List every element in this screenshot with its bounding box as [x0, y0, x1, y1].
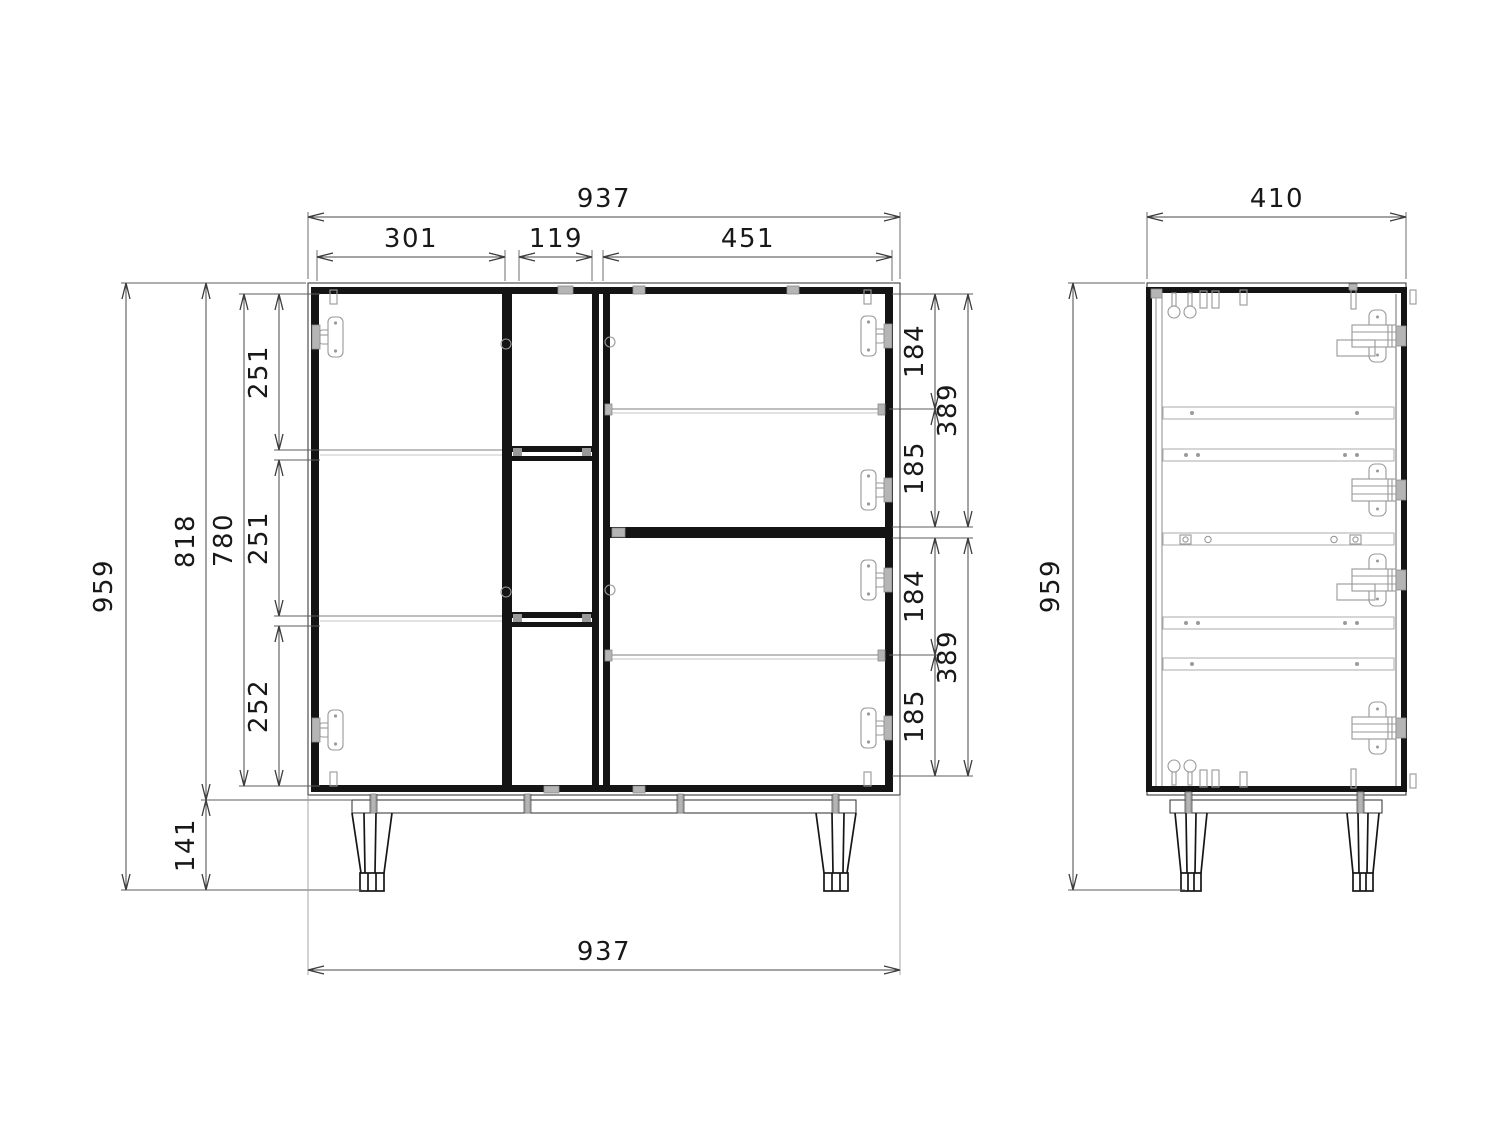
- side-rail-5: [1163, 658, 1394, 670]
- front-plinth: [352, 800, 856, 813]
- side-view: 410 959: [1036, 184, 1416, 891]
- front-right-leg: [816, 813, 856, 891]
- dim-side-total-height: 959: [1036, 559, 1066, 613]
- side-right-leg: [1347, 813, 1379, 891]
- front-niche-shelf-2: [512, 612, 592, 618]
- front-right-panel-edge: [885, 291, 893, 788]
- dim-front-right-width: 451: [721, 224, 775, 254]
- dim-front-bottom-width: 937: [577, 937, 631, 967]
- dim-right-upper-below-shelf: 185: [900, 441, 930, 495]
- dim-front-middle-width: 119: [529, 224, 583, 254]
- dim-right-lower-below-shelf: 185: [900, 689, 930, 743]
- front-dimensions: 937 301 119 451: [89, 184, 973, 975]
- side-front-edge: [1401, 287, 1407, 792]
- front-right-door-stile: [603, 294, 610, 785]
- dim-right-lower-above-shelf: 184: [900, 569, 930, 623]
- dim-right-upper-above-shelf: 184: [900, 324, 930, 378]
- front-niche-shelf-1: [512, 446, 592, 452]
- front-bottom-panel-edge: [311, 785, 893, 792]
- dim-front-top-width: 937: [577, 184, 631, 214]
- front-divider-a-edge: [502, 294, 512, 785]
- front-view: 937 301 119 451: [89, 184, 973, 975]
- side-shelf-rails: [1163, 407, 1394, 670]
- front-divider-b-edge: [592, 294, 599, 785]
- dim-front-left-compartment-3: 252: [244, 679, 274, 733]
- side-hinge-3: [1352, 554, 1406, 606]
- plinth-bolts: [370, 794, 839, 813]
- side-top-edge: [1147, 287, 1406, 293]
- dim-front-total-height: 959: [89, 559, 119, 613]
- side-rail-1: [1163, 407, 1394, 419]
- front-fittings: [330, 286, 871, 793]
- dim-front-leg-height: 141: [171, 818, 201, 872]
- side-hinge-4: [1352, 702, 1406, 754]
- front-right-middle-divider: [610, 527, 886, 538]
- dim-right-lower-opening: 389: [933, 630, 963, 684]
- front-top-panel-edge: [311, 287, 893, 294]
- front-left-panel-edge: [311, 291, 319, 788]
- side-hinge-2: [1352, 464, 1406, 516]
- side-bottom-edge: [1147, 786, 1406, 792]
- front-left-leg: [352, 813, 392, 891]
- drawing-canvas: 937 301 119 451: [0, 0, 1500, 1125]
- front-carcass: [308, 283, 900, 795]
- side-left-leg: [1175, 813, 1207, 891]
- dim-right-upper-opening: 389: [933, 383, 963, 437]
- dim-front-left-width: 301: [384, 224, 438, 254]
- dim-front-left-compartment-1: 251: [244, 345, 274, 399]
- side-back-edge: [1146, 287, 1152, 792]
- side-hinge-1: [1352, 310, 1406, 362]
- side-plinth: [1170, 800, 1382, 813]
- dim-front-left-compartment-2: 251: [244, 511, 274, 565]
- dim-front-carcass-height: 818: [171, 514, 201, 568]
- front-base: [352, 794, 856, 891]
- side-base: [1170, 792, 1382, 891]
- dim-side-depth: 410: [1250, 184, 1304, 214]
- dim-front-interior-height: 780: [209, 513, 239, 567]
- cabinet-technical-drawing: 937 301 119 451: [0, 0, 1500, 1125]
